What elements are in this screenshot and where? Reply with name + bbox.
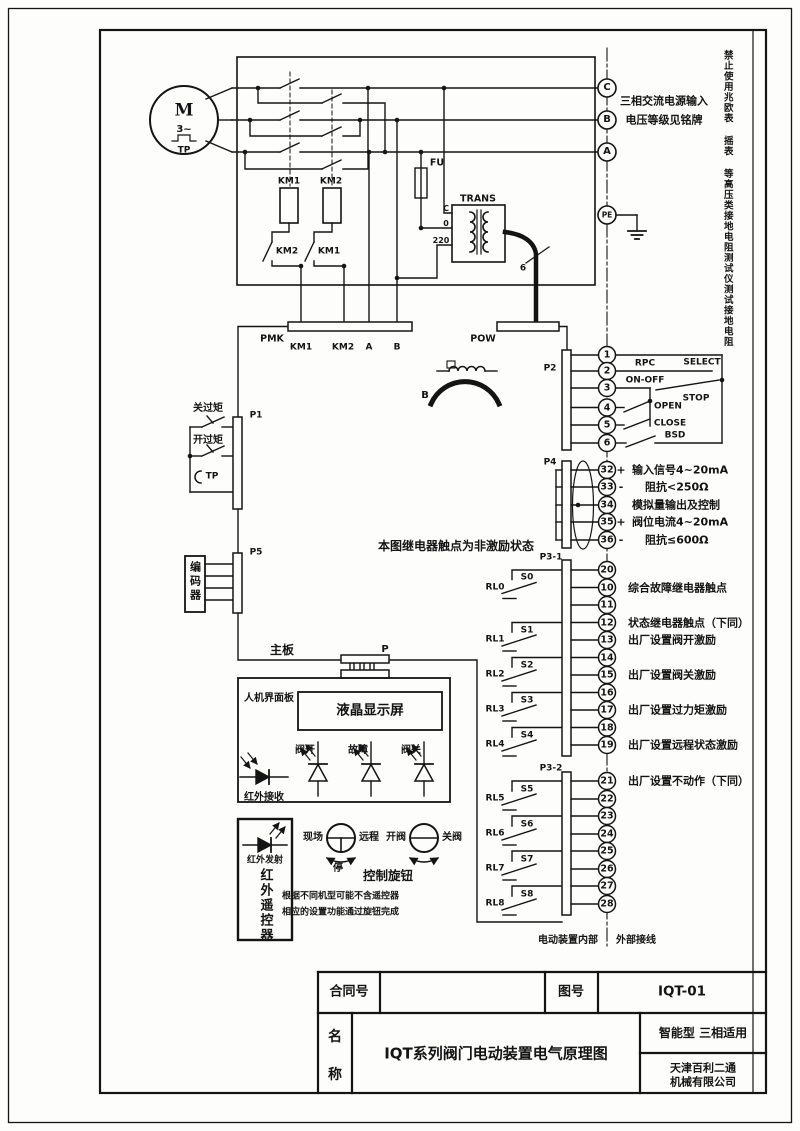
contact-s0: S0 — [521, 574, 534, 583]
pow-bar — [497, 322, 559, 331]
transformer-label: TRANS — [460, 194, 496, 204]
relay-rl7: RL7 — [486, 865, 505, 874]
stop-knob-label: 停 — [333, 864, 343, 874]
terminal-6: 6 — [604, 438, 611, 448]
terminal-c: C — [603, 83, 610, 93]
contact-s6: S6 — [521, 821, 534, 830]
close-valve-label: 关阀 — [442, 833, 462, 843]
terminal-32: 32 — [600, 465, 613, 475]
terminal-a: A — [603, 147, 611, 157]
relay-rl1: RL1 — [486, 636, 505, 645]
type-note: 智能型 三相适用 — [659, 1027, 747, 1039]
terminal-12: 12 — [600, 618, 613, 628]
terminal-18: 18 — [600, 723, 613, 733]
power-cable — [505, 232, 536, 322]
mainboard-label: 主板 — [270, 644, 294, 656]
pmk-label: PMK — [260, 334, 284, 344]
supply-note-line1: 三相交流电源输入 — [620, 96, 708, 107]
terminal-10: 10 — [600, 583, 613, 593]
sign-35: + — [616, 517, 625, 528]
control-knob-label: 控制旋钮 — [363, 870, 413, 883]
p-label: P — [381, 645, 388, 655]
km1-coil — [280, 188, 298, 223]
p4-row-label: 阻抗<250Ω — [645, 482, 709, 493]
terminal-34: 34 — [600, 500, 613, 510]
remote-note2: 相应的设置功能通过旋钮完成 — [282, 909, 399, 918]
terminal-22: 22 — [600, 794, 613, 804]
schematic-canvas — [0, 0, 800, 1131]
knob-mode — [327, 824, 355, 862]
relay-rl5: RL5 — [486, 795, 505, 804]
terminal-20: 20 — [600, 565, 613, 575]
motor-letter: M — [175, 103, 194, 120]
pmk-pin-a: A — [366, 344, 373, 353]
pmk-pin-b: B — [394, 344, 401, 353]
terminal-33: 33 — [600, 482, 613, 492]
relay-rl6: RL6 — [486, 830, 505, 839]
terminal-19: 19 — [600, 740, 613, 750]
relay-rl3: RL3 — [486, 706, 505, 715]
p4-row-label: 阻抗≤600Ω — [645, 535, 709, 546]
sign-33: - — [619, 482, 624, 493]
p1-bar — [233, 417, 242, 509]
ir-transmit-icon — [243, 823, 287, 852]
fuse-label: FU — [430, 158, 444, 168]
terminal-17: 17 — [600, 705, 613, 715]
contact-s2: S2 — [521, 662, 534, 671]
pmk-pin-km2: KM2 — [332, 344, 354, 353]
km2-coil — [323, 188, 341, 223]
pow-label: POW — [470, 334, 496, 344]
p31-section — [502, 560, 616, 756]
remote-label: 远程 — [359, 833, 379, 843]
rpc-label: RPC — [635, 360, 655, 369]
led-open-label: 阀开 — [295, 746, 315, 756]
p32-label: P3-2 — [540, 765, 563, 774]
led-close-label: 阀关 — [401, 746, 421, 756]
company-line1: 天津百利二通 — [670, 1063, 736, 1074]
terminal-b: B — [603, 115, 611, 125]
terminal-pe: PE — [602, 211, 613, 219]
supply-note-line2: 电压等级见铭牌 — [626, 115, 703, 126]
open-torque-label: 开过矩 — [193, 436, 223, 446]
drawing-no-value: IQT-01 — [658, 985, 706, 999]
km1-coil-label: KM1 — [278, 178, 300, 187]
terminal-23: 23 — [600, 811, 613, 821]
relay-rl0: RL0 — [486, 583, 505, 592]
bsd-label: BSD — [665, 432, 686, 441]
cable-core-count: 6 — [520, 265, 526, 274]
power-section — [150, 57, 599, 322]
open-label: OPEN — [654, 403, 682, 412]
schematic-sheet: M 3~ TP KM1 KM2 KM2 KM1 FU TRANS C 0 220… — [0, 0, 800, 1131]
knob-valve — [410, 824, 438, 862]
terminal-36: 36 — [600, 535, 613, 545]
annotation-no-action: 出厂设置不动作（下同） — [628, 776, 749, 787]
contact-s3: S3 — [521, 697, 534, 706]
contract-no-label: 合同号 — [329, 986, 368, 999]
ir-transmit-label: 红外发射 — [247, 857, 283, 866]
open-valve-label: 开阀 — [386, 833, 406, 843]
annotation-torque-exc: 出厂设置过力矩激励 — [628, 705, 727, 716]
terminal-2: 2 — [604, 366, 611, 376]
terminal-4: 4 — [604, 403, 611, 413]
choke-symbol — [431, 361, 499, 404]
frame — [9, 9, 792, 1123]
p4-row-label: 阀位电流4~20mA — [632, 517, 728, 528]
contact-s8: S8 — [521, 891, 534, 900]
terminal-11: 11 — [600, 600, 613, 610]
annotation-close-exc: 出厂设置阀关激励 — [628, 670, 716, 681]
terminal-25: 25 — [600, 846, 613, 856]
transformer-symbol — [397, 88, 505, 278]
external-label: 外部接线 — [616, 936, 656, 946]
terminal-24: 24 — [600, 829, 613, 839]
p1-label: P1 — [250, 412, 263, 421]
p5-bar — [233, 553, 242, 613]
name-label-bottom: 称 — [328, 1068, 342, 1082]
p5-label: P5 — [250, 549, 263, 558]
km1-interlock-label: KM1 — [318, 248, 340, 257]
contact-s4: S4 — [521, 732, 534, 741]
contact-s1: S1 — [521, 627, 534, 636]
relay-state-note: 本图继电器触点为非激励状态 — [378, 540, 534, 552]
local-label: 现场 — [303, 833, 323, 843]
km2-interlock-label: KM2 — [276, 248, 298, 257]
onoff-label: ON-OFF — [626, 377, 665, 386]
ir-receive-label: 红外接收 — [244, 793, 284, 803]
terminal-13: 13 — [600, 635, 613, 645]
p32-section — [502, 772, 616, 915]
drawing-no-label: 图号 — [558, 986, 584, 999]
tp-contact-label: TP — [206, 473, 219, 482]
terminal-27: 27 — [600, 881, 613, 891]
annotation-remote-exc: 出厂设置远程状态激励 — [628, 740, 738, 751]
company-line2: 机械有限公司 — [670, 1077, 736, 1088]
ir-receive-icon — [240, 753, 288, 784]
close-torque-label: 关过矩 — [193, 404, 223, 414]
terminal-5: 5 — [604, 420, 611, 430]
trans-pin-c: C — [443, 205, 449, 213]
encoder-label: 编码器 — [190, 561, 201, 603]
junction-dots — [188, 86, 725, 508]
drawing-title: IQT系列阀门电动装置电气原理图 — [384, 1047, 608, 1062]
p2-label: P2 — [544, 365, 557, 374]
p4-label: P4 — [544, 459, 557, 468]
internal-label: 电动装置内部 — [538, 936, 598, 946]
terminal-15: 15 — [600, 670, 613, 680]
close-label: CLOSE — [654, 420, 686, 429]
select-label: SELECT — [683, 359, 720, 368]
choke-label: B — [421, 391, 429, 401]
terminal-14: 14 — [600, 653, 613, 663]
relay-rl4: RL4 — [486, 741, 505, 750]
terminal-16: 16 — [600, 688, 613, 698]
annotation-status: 状态继电器触点（下同） — [628, 617, 749, 628]
terminal-3: 3 — [604, 383, 611, 393]
fuse-symbol — [415, 152, 427, 228]
lcd-label: 液晶显示屏 — [336, 704, 404, 718]
hmi-panel-label: 人机界面板 — [244, 694, 294, 704]
annotation-fault: 综合故障继电器触点 — [628, 582, 727, 593]
relay-rl8: RL8 — [486, 900, 505, 909]
name-label-top: 名 — [328, 1030, 342, 1044]
sign-32: + — [616, 465, 625, 476]
p-connector — [341, 655, 389, 678]
terminal-28: 28 — [600, 899, 613, 909]
remote-controller-label: 红外遥控器 — [259, 868, 272, 943]
led-fault-label: 故障 — [348, 746, 368, 756]
p4-row-label: 模拟量输出及控制 — [632, 500, 720, 511]
ground-symbol — [616, 215, 646, 239]
stop-label: STOP — [683, 395, 710, 404]
terminal-35: 35 — [600, 517, 613, 527]
terminal-21: 21 — [600, 776, 613, 786]
relay-rl2: RL2 — [486, 671, 505, 680]
trans-pin-0: 0 — [443, 220, 449, 228]
motor-phase: 3~ — [176, 125, 191, 135]
contact-s5: S5 — [521, 786, 534, 795]
pmk-bar — [288, 322, 412, 331]
megger-warning: 禁止使用兆欧表 摇表 等高压类接地电阻测试仪测试接地电阻 — [722, 50, 732, 347]
terminal-1: 1 — [604, 350, 611, 360]
p31-label: P3-1 — [540, 554, 563, 563]
pmk-pin-km1: KM1 — [290, 344, 312, 353]
p4-row-label: 输入信号4~20mA — [632, 465, 728, 476]
terminal-26: 26 — [600, 864, 613, 874]
annotation-open-exc: 出厂设置阀开激励 — [628, 635, 716, 646]
sign-36: - — [619, 535, 624, 546]
km2-coil-label: KM2 — [320, 178, 342, 187]
motor-tp: TP — [178, 147, 191, 156]
contact-s7: S7 — [521, 856, 534, 865]
remote-note1: 根据不同机型可能不含遥控器 — [282, 893, 399, 902]
trans-pin-220: 220 — [433, 237, 450, 245]
